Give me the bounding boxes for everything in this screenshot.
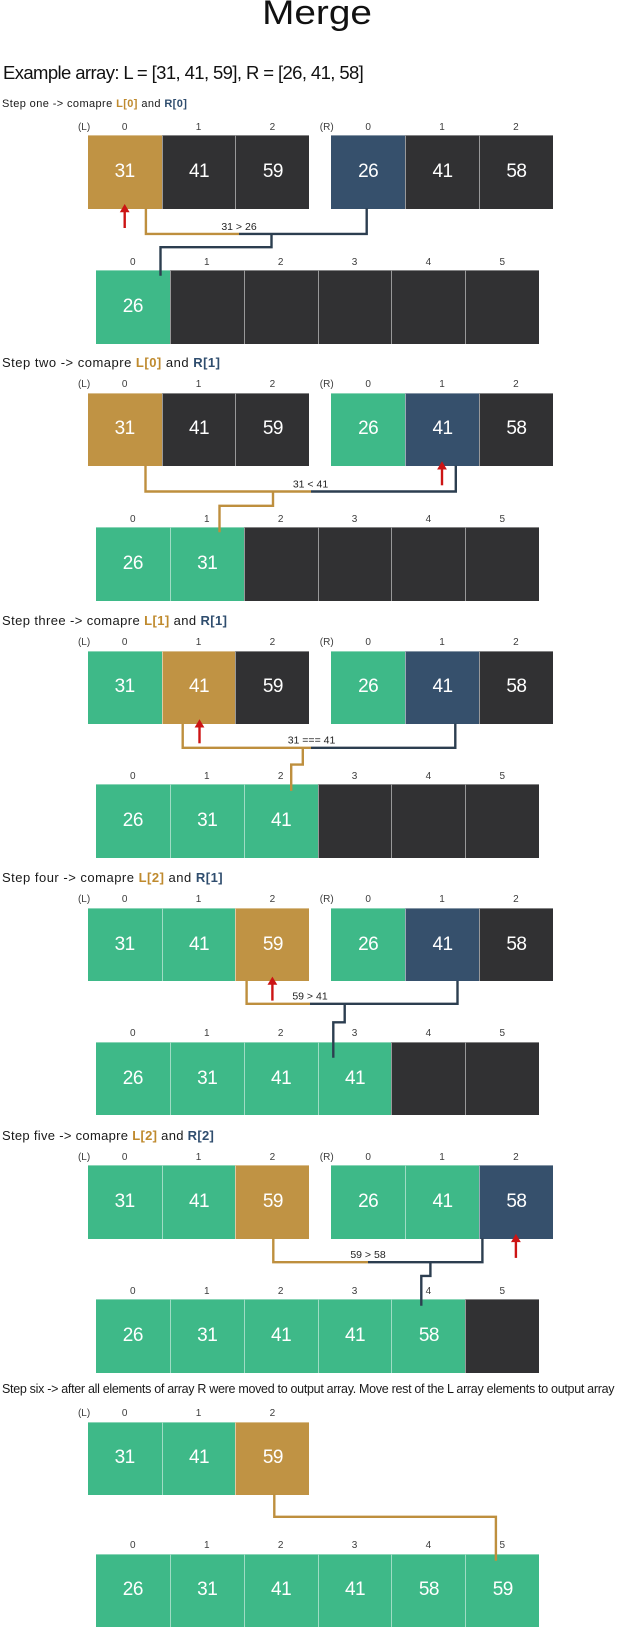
svg-text:59 > 58: 59 > 58: [350, 1249, 385, 1261]
svg-text:31 > 26: 31 > 26: [221, 221, 256, 233]
svg-text:31 < 41: 31 < 41: [293, 478, 328, 490]
svg-text:31 === 41: 31 === 41: [288, 735, 336, 747]
svg-text:59 > 41: 59 > 41: [292, 991, 327, 1003]
